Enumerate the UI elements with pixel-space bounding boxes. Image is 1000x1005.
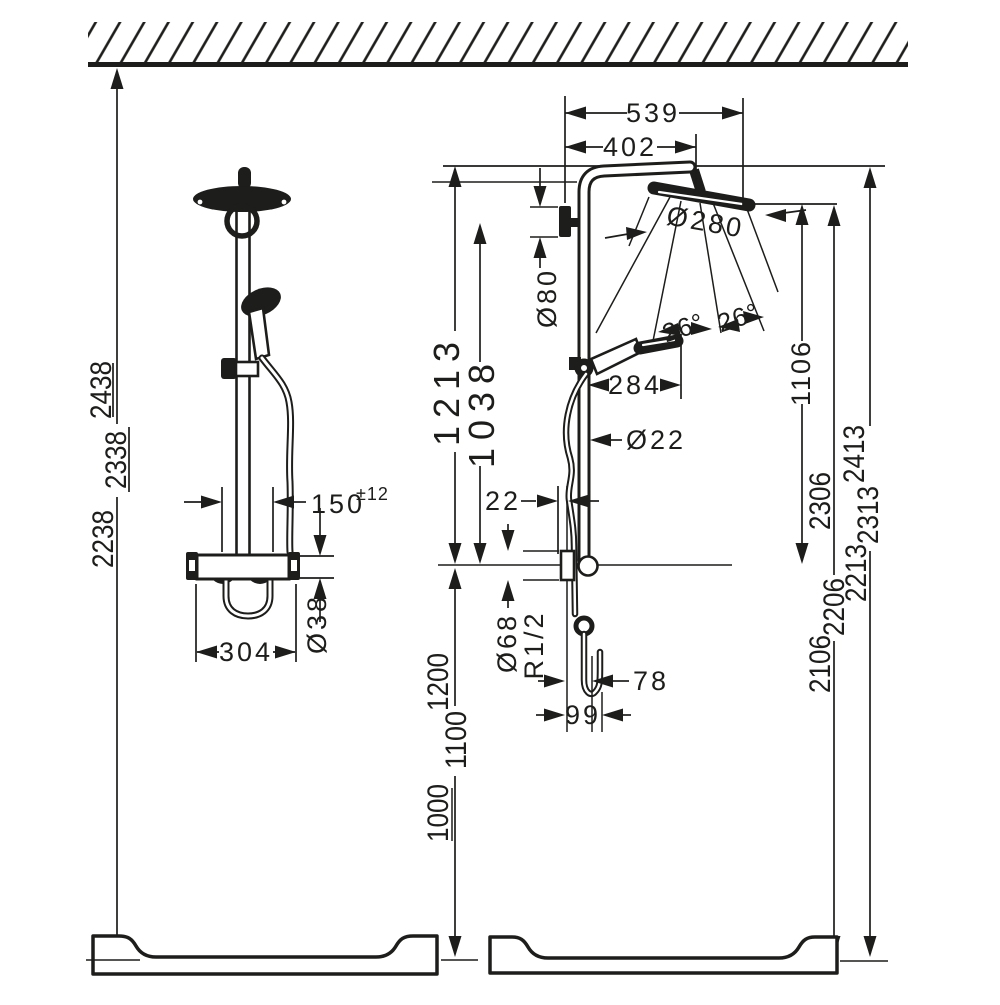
label-1038: 1038: [461, 356, 502, 468]
height-label-2238: 2238: [87, 510, 120, 568]
label-402: 402: [603, 132, 657, 162]
label-284: 284: [608, 370, 662, 400]
label-angle-1: 26°: [658, 307, 708, 349]
shower-hose: [262, 358, 291, 552]
label-99: 99: [565, 700, 601, 730]
dim-floor-heights: 1200 1100 1000: [422, 568, 473, 957]
right-shower-tray: [490, 937, 888, 973]
dim-hose-offset-99: 99: [536, 692, 631, 732]
head-joint: [694, 170, 701, 192]
label-angle-2: 26°: [713, 297, 763, 339]
valve-body-side: [579, 557, 598, 576]
dim-max-heights: 2413 2313 2213: [838, 167, 885, 957]
height-label-2413: 2413: [838, 425, 871, 483]
dim-head-diameter: Ø280: [605, 197, 806, 292]
wall-bracket-arm: [571, 218, 580, 227]
wall-bracket: [559, 206, 571, 237]
hand-shower-handle: [249, 308, 269, 359]
height-label-1100: 1100: [440, 711, 473, 769]
dim-valve-width: 304: [196, 584, 296, 667]
height-label-2313: 2313: [852, 486, 885, 544]
left-shower-tray: [86, 936, 478, 974]
hand-shower-handle-side: [591, 339, 641, 374]
label-78: 78: [633, 666, 669, 696]
dim-left-heights: 2438 2338 2238: [85, 68, 133, 958]
label-d22: Ø22: [626, 425, 686, 455]
left-shower-unit: [186, 167, 300, 616]
dim-hose-offset-78: 78: [538, 656, 669, 732]
height-label-1200: 1200: [422, 653, 455, 711]
label-539: 539: [626, 98, 680, 128]
thermostat-body: [197, 555, 289, 579]
label-304: 304: [219, 637, 273, 667]
arrow-up: [111, 68, 124, 89]
technical-drawing-page: 2438 2338 2238 150: [0, 0, 1000, 1000]
label-thread: R1/2: [519, 610, 549, 679]
dim-pipe-diameter: Ø22: [590, 425, 686, 455]
label-d38: Ø38: [302, 594, 332, 654]
dim-bracket-diameter: Ø80: [530, 168, 562, 328]
shower-system-dimension-diagram: 2438 2338 2238 150: [0, 0, 1000, 1000]
label-150-tolerance: ±12: [356, 484, 389, 504]
head-top-stub: [238, 167, 251, 189]
height-label-2306: 2306: [804, 472, 837, 530]
label-22: 22: [485, 486, 521, 516]
slider-holder-clamp: [236, 362, 258, 376]
height-label-2338: 2338: [100, 431, 133, 489]
label-1106: 1106: [786, 340, 816, 406]
height-label-2106: 2106: [804, 635, 837, 693]
ceiling-hatch: [88, 22, 908, 65]
height-label-2213: 2213: [840, 544, 873, 602]
valve-wall-plate: [561, 551, 574, 580]
riser-pipe: [237, 210, 250, 558]
label-d68: Ø68: [492, 613, 522, 673]
dim-valve-diameter: Ø38: [300, 508, 334, 654]
height-label-1000: 1000: [422, 784, 455, 842]
slider-holder: [221, 358, 237, 379]
hatch-band: [88, 22, 908, 63]
height-label-2438: 2438: [85, 361, 118, 419]
label-d80: Ø80: [532, 268, 562, 328]
